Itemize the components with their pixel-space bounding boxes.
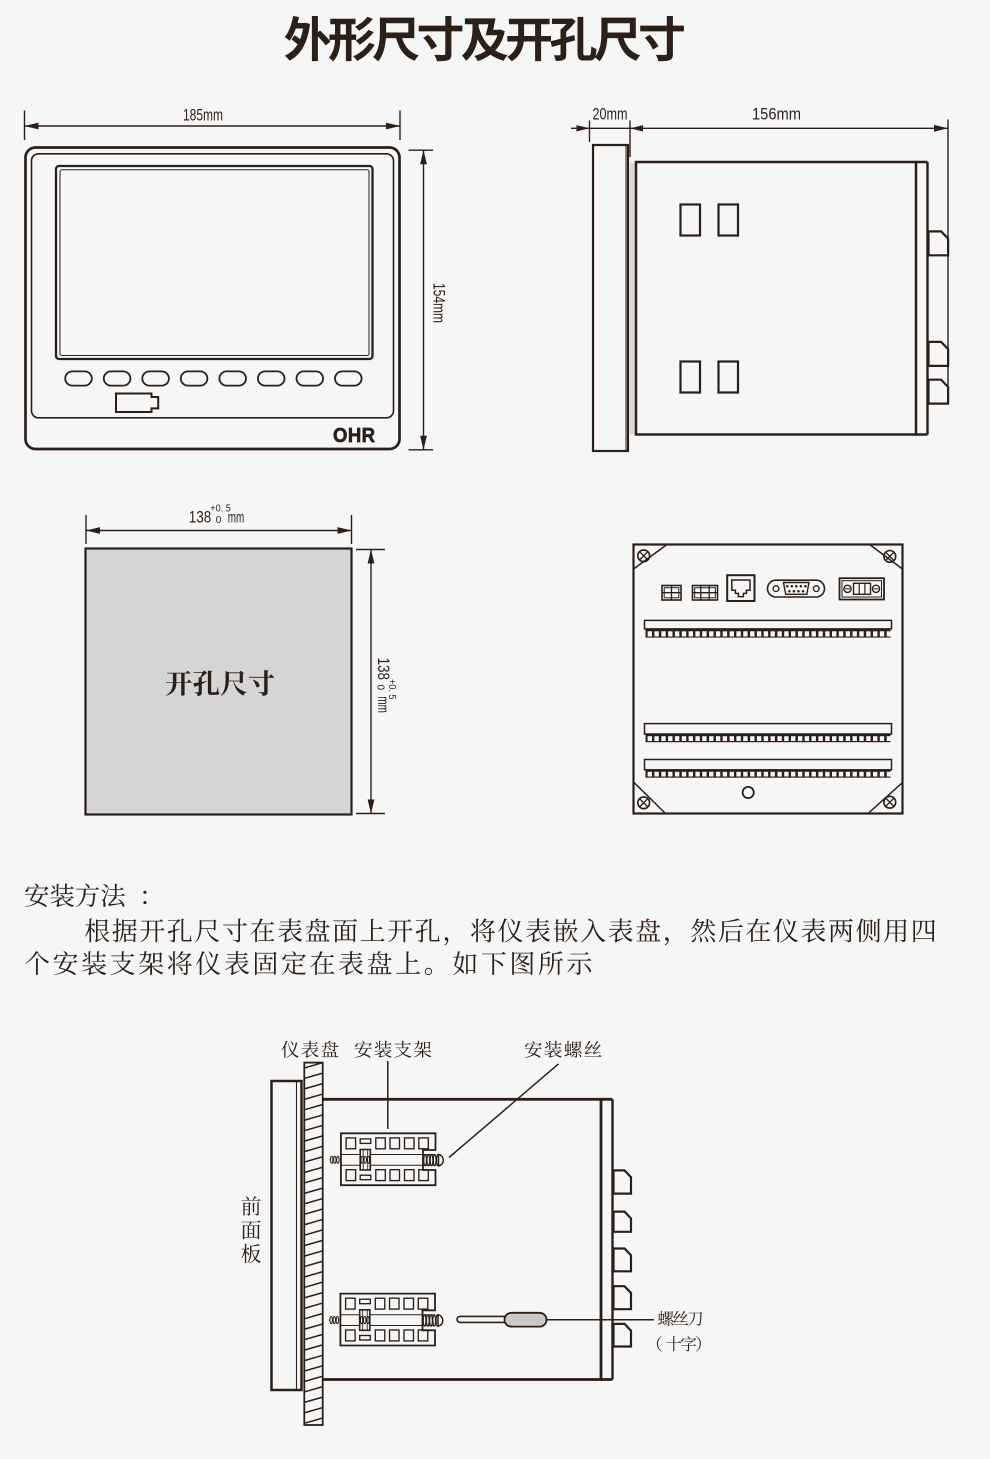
svg-text:mm: mm bbox=[374, 696, 391, 713]
svg-text:156mm: 156mm bbox=[752, 104, 801, 123]
svg-text:138: 138 bbox=[189, 507, 212, 526]
svg-text:138: 138 bbox=[374, 658, 393, 681]
svg-text:OHR: OHR bbox=[333, 424, 376, 447]
svg-text:0: 0 bbox=[375, 685, 386, 691]
svg-text:185mm: 185mm bbox=[183, 105, 223, 124]
svg-text:mm: mm bbox=[228, 510, 245, 527]
svg-text:154mm: 154mm bbox=[430, 283, 449, 323]
svg-text:20mm: 20mm bbox=[593, 104, 628, 123]
svg-text:0: 0 bbox=[216, 515, 222, 526]
